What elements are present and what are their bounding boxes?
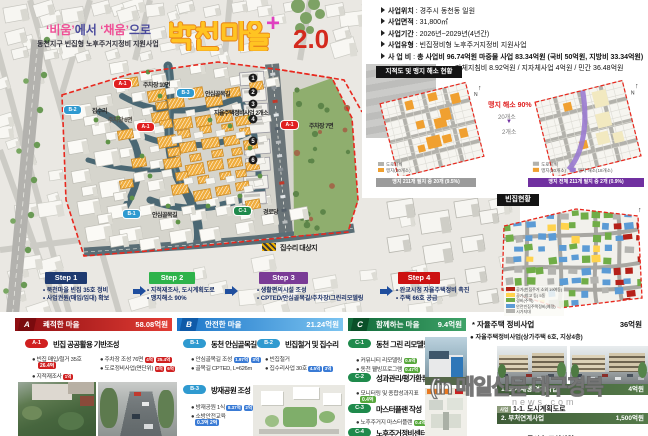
svg-text:맹지(20개소): 맹지(20개소)	[541, 167, 566, 174]
svg-text:맹지 해소(18개소): 맹지 해소(18개소)	[578, 167, 613, 174]
svg-text:↑: ↑	[635, 82, 639, 90]
svg-text:N: N	[474, 92, 478, 98]
svg-text:↑: ↑	[478, 85, 482, 92]
svg-text:도로시획: 도로시획	[541, 161, 558, 168]
svg-text:맹지(20개소): 맹지(20개소)	[386, 167, 411, 174]
svg-text:N: N	[631, 90, 635, 96]
svg-text:↑: ↑	[638, 207, 642, 214]
svg-text:도로시획: 도로시획	[386, 161, 403, 168]
